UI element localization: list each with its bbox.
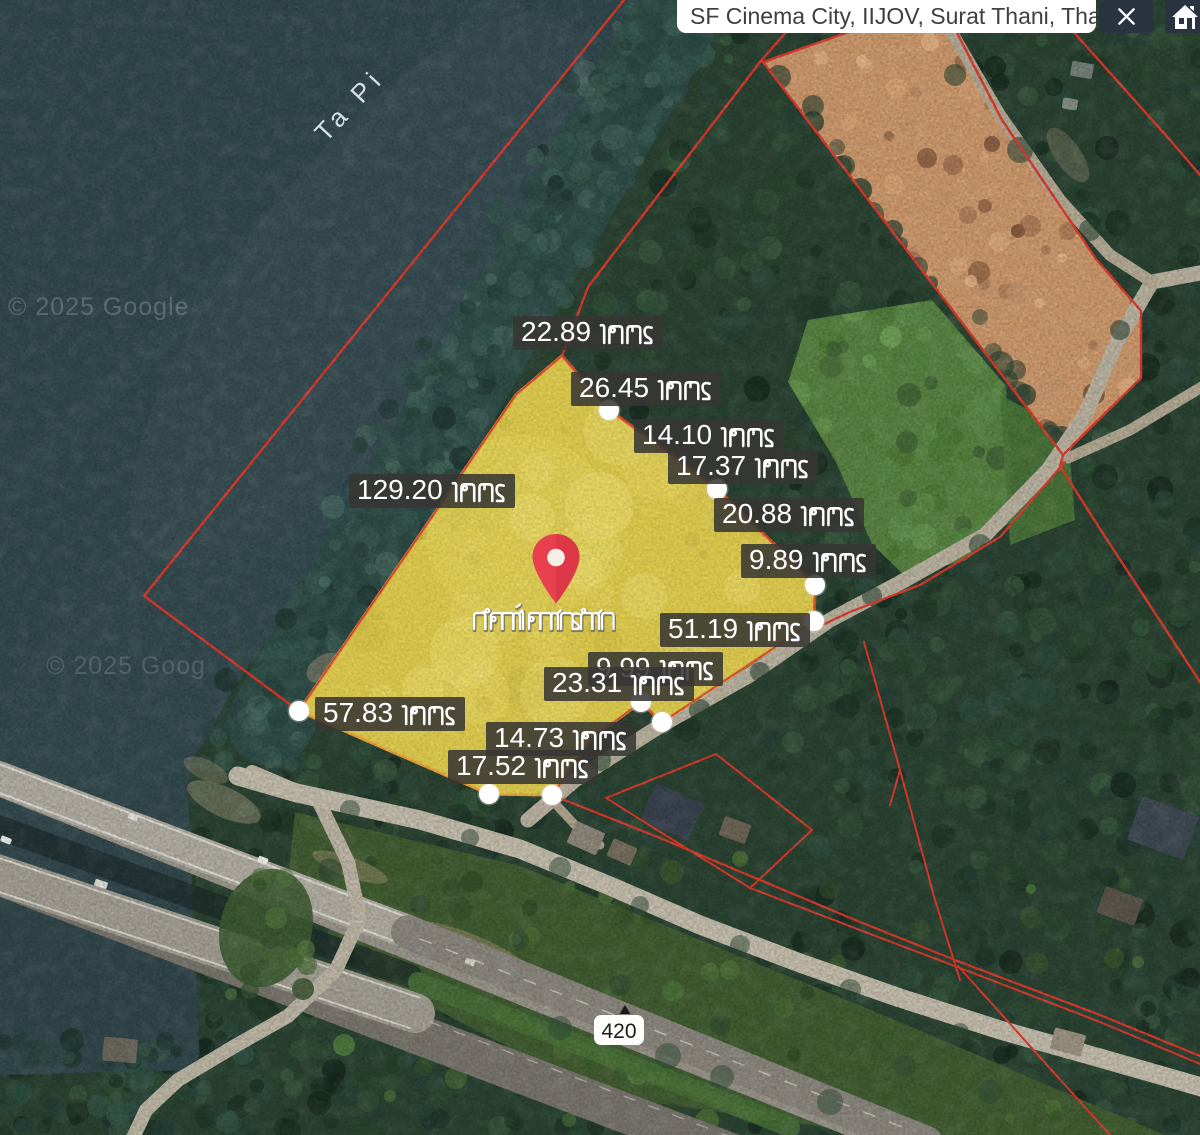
svg-text:© 2025 Goog: © 2025 Goog: [46, 652, 206, 680]
svg-text:© 2025 Google: © 2025 Google: [8, 293, 190, 321]
svg-text:420: 420: [601, 1020, 636, 1043]
